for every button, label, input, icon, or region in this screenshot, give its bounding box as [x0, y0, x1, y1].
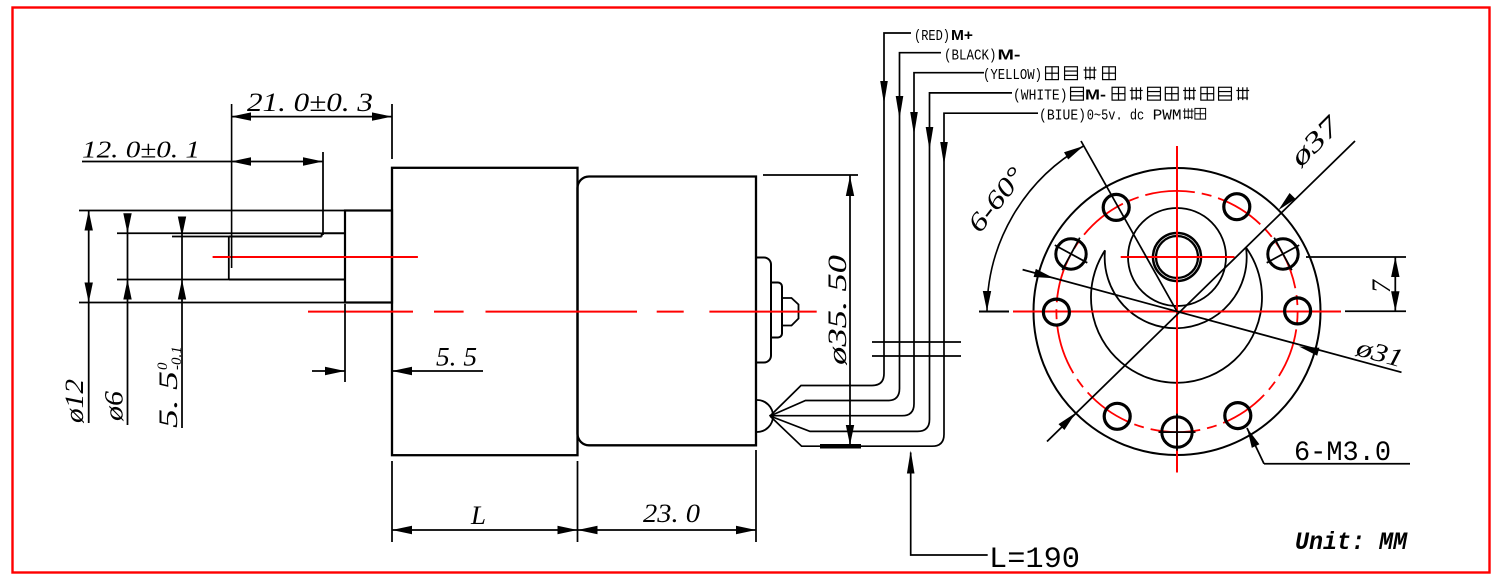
svg-text:M+: M+ [951, 27, 973, 44]
svg-text:(BLACK): (BLACK) [944, 48, 997, 65]
svg-text:12. 0±0. 1: 12. 0±0. 1 [82, 138, 200, 164]
svg-text:M-: M- [1085, 87, 1106, 104]
svg-text:Unit: MM: Unit: MM [1295, 528, 1408, 557]
svg-text:(WHITE): (WHITE) [1013, 88, 1068, 105]
svg-text:PWM: PWM [1153, 108, 1182, 125]
svg-text:L: L [470, 501, 486, 530]
svg-text:ø12: ø12 [60, 379, 89, 424]
svg-text:L=190: L=190 [989, 543, 1080, 577]
svg-text:(YELLOW): (YELLOW) [983, 67, 1042, 84]
svg-text:-0.1: -0.1 [169, 346, 185, 370]
svg-text:5. 5: 5. 5 [436, 343, 477, 372]
svg-text:(RED): (RED) [914, 28, 950, 45]
svg-text:6-M3.0: 6-M3.0 [1294, 438, 1391, 469]
svg-text:21. 0±0. 3: 21. 0±0. 3 [247, 88, 373, 117]
svg-text:M-: M- [998, 47, 1021, 64]
svg-text:7: 7 [1367, 279, 1396, 293]
svg-text:0~5v. dc: 0~5v. dc [1087, 108, 1145, 125]
svg-text:23. 0: 23. 0 [643, 499, 700, 528]
svg-text:ø6: ø6 [100, 391, 129, 422]
svg-text:ø35. 50: ø35. 50 [823, 255, 852, 366]
svg-text:5. 5: 5. 5 [154, 371, 183, 428]
svg-text:(BIUE): (BIUE) [1039, 108, 1086, 125]
